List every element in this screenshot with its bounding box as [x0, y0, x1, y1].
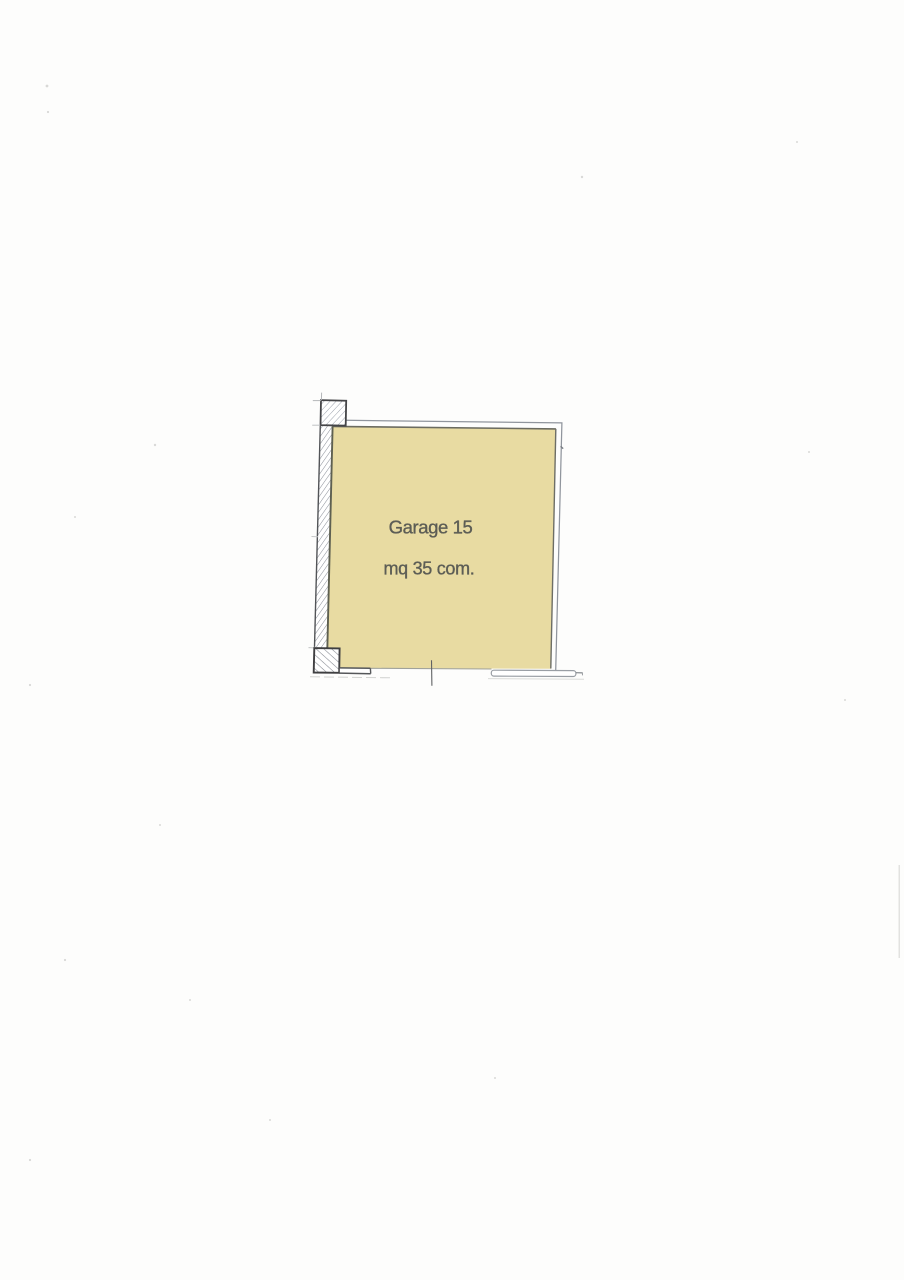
- svg-text:Garage 15: Garage 15: [389, 517, 473, 538]
- svg-text:mq 35 com.: mq 35 com.: [383, 558, 474, 578]
